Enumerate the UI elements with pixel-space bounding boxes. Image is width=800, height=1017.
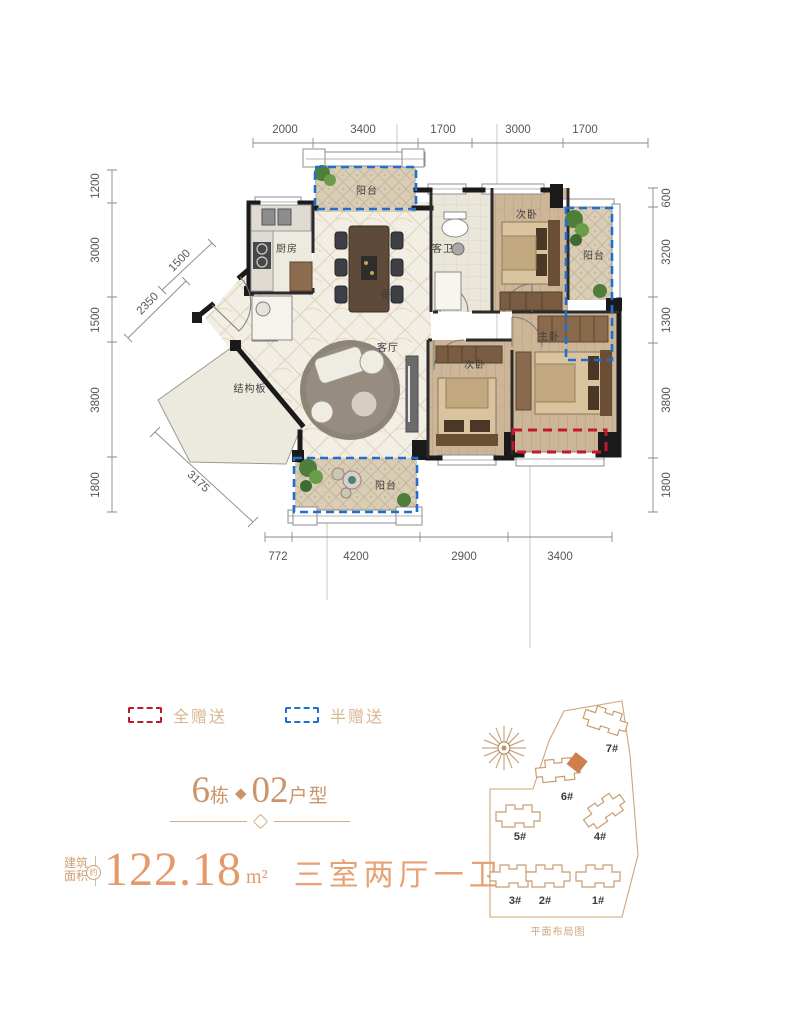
dim-top-1: 3400 — [350, 124, 376, 136]
unit-suffix: 户型 — [289, 786, 329, 807]
half-gift-swatch — [285, 707, 319, 723]
building-1-label: 1# — [592, 895, 604, 907]
dim-left-1: 3000 — [90, 237, 102, 263]
room-label-bedroom-top: 次卧 — [516, 208, 538, 221]
dim-right-1: 3200 — [661, 239, 673, 265]
unit-number: 02 — [252, 770, 289, 811]
building-4 — [580, 789, 629, 832]
dim-diag-2: 3175 — [185, 469, 212, 495]
dim-top-3: 3000 — [505, 124, 531, 136]
building-2-label: 2# — [539, 895, 551, 907]
dim-left-3: 3800 — [90, 387, 102, 413]
area-badge-line1: 建筑 — [64, 857, 88, 871]
dim-top-0: 2000 — [272, 124, 298, 136]
site-plan-caption: 平面布局图 — [531, 926, 586, 938]
building-5 — [496, 805, 540, 827]
room-label-living: 客厅 — [377, 341, 399, 354]
building-3-label: 3# — [509, 895, 521, 907]
room-label-kitchen: 厨房 — [276, 242, 298, 255]
building-5-label: 5# — [514, 831, 526, 843]
full-gift-label: 全赠送 — [173, 703, 227, 727]
dim-diag-1: 2350 — [135, 291, 161, 318]
area-unit: m² — [246, 863, 268, 891]
dim-left-4: 1800 — [90, 472, 102, 498]
divider-line-right — [274, 821, 351, 822]
area-badge: 建筑 面积 约 — [64, 856, 96, 887]
room-label-dining: 餐厅 — [381, 288, 403, 301]
legend: 全赠送 半赠送 — [128, 703, 384, 727]
room-label-balcony-right: 阳台 — [583, 249, 605, 262]
dim-right-4: 1800 — [661, 472, 673, 498]
dim-right-0: 600 — [661, 188, 673, 207]
building-suffix: 栋 — [210, 786, 230, 807]
floor-plan: 阳台 厨房 餐厅 客卫 次卧 阳台 主卧 次卧 客厅 结构板 阳台 2000 3… — [0, 0, 800, 660]
room-label-balcony-bottom: 阳台 — [375, 479, 397, 492]
divider-line-left — [170, 821, 247, 822]
building-4-label: 4# — [594, 831, 606, 843]
room-label-guest-bath: 客卫 — [432, 242, 454, 255]
dim-diag-0: 1500 — [167, 248, 193, 275]
room-label-balcony-top: 阳台 — [356, 184, 378, 197]
diamond-separator: ◆ — [230, 785, 252, 802]
dim-left-2: 1500 — [90, 307, 102, 333]
title-divider — [170, 816, 350, 827]
room-label-bedroom-mid: 次卧 — [464, 358, 486, 371]
legend-item-half-gift: 半赠送 — [285, 703, 384, 727]
area-about-circle: 约 — [86, 865, 101, 880]
compass-icon — [482, 726, 526, 770]
full-gift-swatch — [128, 707, 162, 723]
dim-left-0: 1200 — [90, 173, 102, 199]
dim-right-3: 3800 — [661, 387, 673, 413]
legend-item-full-gift: 全赠送 — [128, 703, 227, 727]
dim-top-2: 1700 — [430, 124, 456, 136]
building-7-label: 7# — [606, 743, 618, 755]
room-label-structural: 结构板 — [234, 382, 267, 395]
building-number: 6 — [191, 770, 210, 811]
building-1 — [576, 865, 620, 887]
floorplan-page: 阳台 厨房 餐厅 客卫 次卧 阳台 主卧 次卧 客厅 结构板 阳台 2000 3… — [0, 0, 800, 1017]
dim-bottom-2: 2900 — [451, 551, 477, 563]
dim-right-2: 1300 — [661, 307, 673, 333]
building-2 — [526, 865, 570, 887]
site-plan: 7# 6# 5# 4# 3# 2# 1# 平面布局图 — [440, 690, 700, 960]
area-row: 建筑 面积 约 122.18 m² 三室两厅一卫 — [64, 848, 504, 891]
dim-bottom-3: 3400 — [547, 551, 573, 563]
dim-top-4: 1700 — [572, 124, 598, 136]
half-gift-label: 半赠送 — [330, 703, 384, 727]
dim-bottom-1: 4200 — [343, 551, 369, 563]
dim-bottom-0: 772 — [268, 551, 287, 563]
area-value: 122.18 — [104, 848, 242, 891]
building-6-label: 6# — [561, 791, 573, 803]
area-badge-line2: 面积 — [64, 870, 88, 884]
divider-diamond-ornament — [252, 814, 268, 830]
room-label-master: 主卧 — [538, 330, 560, 343]
